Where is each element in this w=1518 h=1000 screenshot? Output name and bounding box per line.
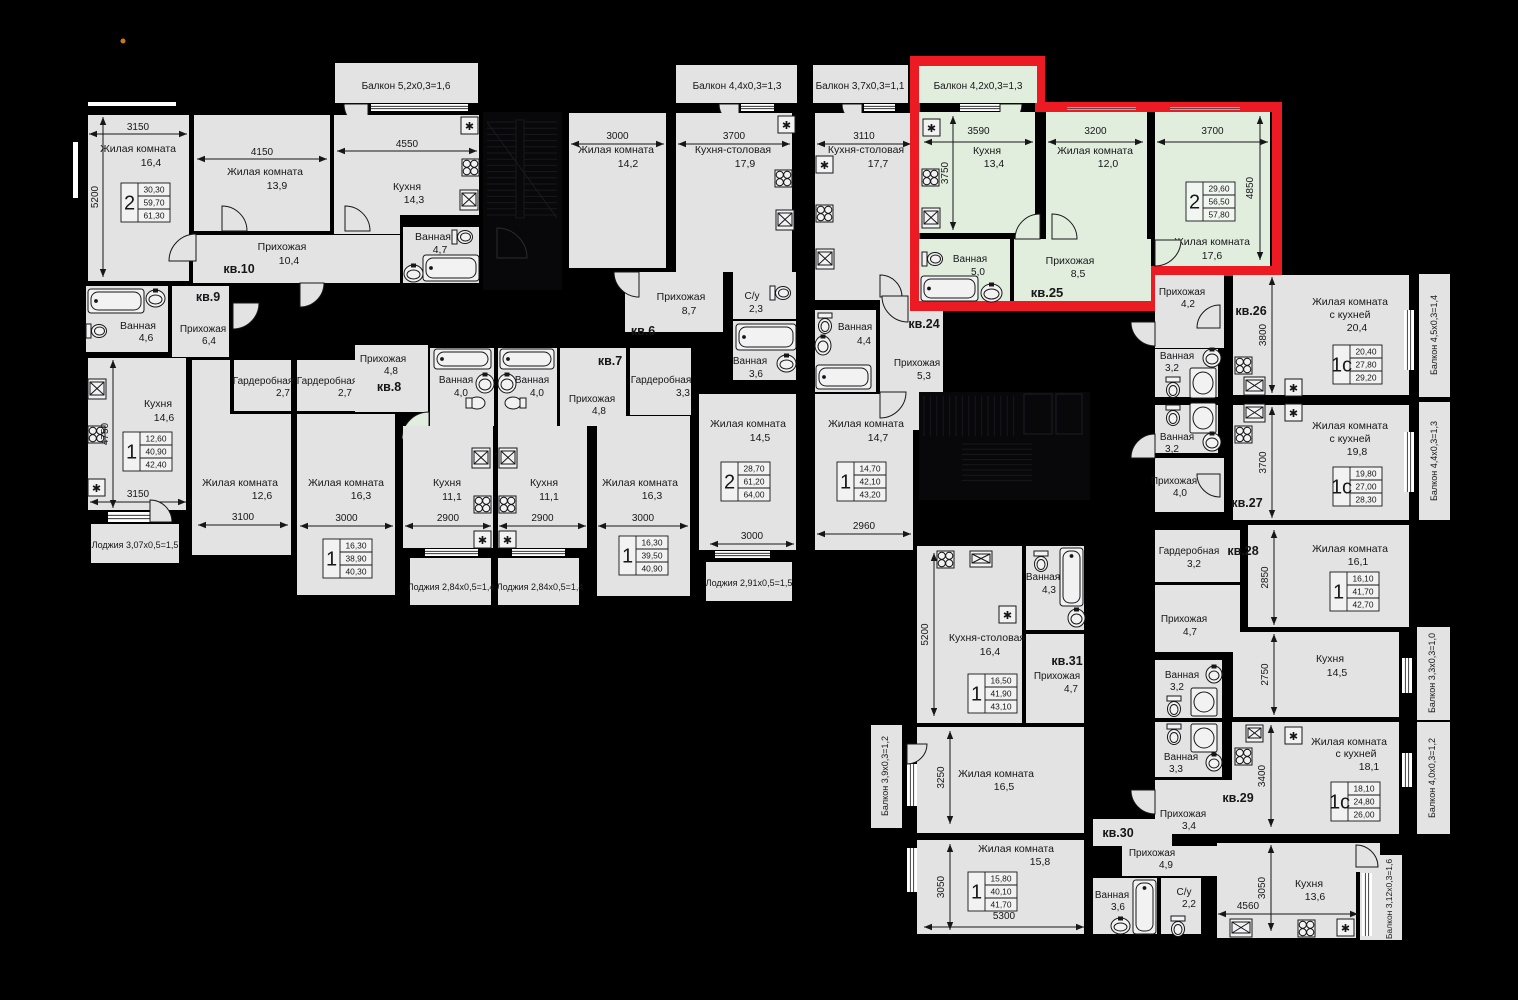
svg-text:1: 1: [971, 684, 982, 706]
svg-text:кв.31: кв.31: [1051, 654, 1082, 668]
svg-text:42,70: 42,70: [1353, 600, 1374, 610]
svg-text:3,3: 3,3: [1169, 764, 1183, 775]
svg-text:14,2: 14,2: [618, 158, 639, 170]
svg-text:кв.10: кв.10: [223, 262, 254, 276]
svg-text:11,1: 11,1: [539, 491, 559, 503]
svg-text:16,10: 16,10: [1353, 574, 1374, 584]
svg-text:17,6: 17,6: [1202, 250, 1223, 262]
svg-text:Жилая комната: Жилая комната: [958, 768, 1034, 780]
svg-text:40,30: 40,30: [346, 567, 367, 577]
svg-text:Жилая комната: Жилая комната: [1312, 543, 1388, 555]
svg-text:Прихожая: Прихожая: [894, 358, 940, 369]
svg-text:Гардеробная: Гардеробная: [233, 375, 294, 387]
svg-text:✱: ✱: [1289, 731, 1298, 743]
svg-text:16,30: 16,30: [346, 541, 367, 551]
svg-text:✱: ✱: [1341, 923, 1350, 935]
svg-text:2900: 2900: [437, 513, 460, 524]
svg-text:16,3: 16,3: [642, 490, 663, 502]
svg-text:Ванная: Ванная: [415, 231, 451, 243]
svg-text:19,8: 19,8: [1347, 446, 1368, 458]
svg-text:Жилая комната: Жилая комната: [202, 477, 278, 489]
svg-text:Ванная: Ванная: [120, 320, 156, 332]
svg-text:5,3: 5,3: [917, 371, 931, 382]
svg-text:4,8: 4,8: [592, 406, 606, 417]
svg-text:42,10: 42,10: [860, 477, 881, 487]
svg-text:Прихожая: Прихожая: [1159, 287, 1205, 298]
svg-text:57,80: 57,80: [1209, 210, 1230, 220]
svg-text:Прихожая: Прихожая: [1161, 614, 1207, 625]
svg-text:20,4: 20,4: [1347, 322, 1368, 334]
svg-text:Балкон 4,0х0,3=1,2: Балкон 4,0х0,3=1,2: [1427, 738, 1437, 818]
svg-text:Прихожая: Прихожая: [258, 241, 307, 253]
svg-text:29,20: 29,20: [1356, 373, 1377, 383]
svg-text:Балкон 3,12х0,3=1,6: Балкон 3,12х0,3=1,6: [1384, 859, 1394, 940]
svg-text:Прихожая: Прихожая: [569, 394, 615, 405]
svg-text:3,4: 3,4: [1182, 821, 1196, 832]
svg-text:12,0: 12,0: [1098, 158, 1119, 170]
svg-text:2,7: 2,7: [338, 388, 352, 399]
svg-text:42,40: 42,40: [146, 460, 167, 470]
svg-text:Жилая комната: Жилая комната: [828, 418, 904, 430]
svg-text:14,6: 14,6: [154, 412, 175, 424]
svg-text:4,0: 4,0: [454, 388, 468, 399]
svg-text:3150: 3150: [127, 122, 150, 133]
svg-text:3700: 3700: [1201, 126, 1224, 137]
svg-text:кв.24: кв.24: [908, 317, 939, 331]
svg-text:Прихожая: Прихожая: [1129, 848, 1175, 859]
svg-text:4,0: 4,0: [1173, 488, 1187, 499]
svg-text:Балкон 3,7х0,3=1,1: Балкон 3,7х0,3=1,1: [816, 81, 905, 92]
svg-text:Жилая комната: Жилая комната: [602, 477, 678, 489]
svg-text:3700: 3700: [1258, 451, 1269, 474]
svg-text:Ванная: Ванная: [953, 254, 987, 265]
svg-text:Балкон 3,3х0,3=1,0: Балкон 3,3х0,3=1,0: [1427, 633, 1437, 713]
svg-text:12,6: 12,6: [252, 490, 273, 502]
svg-text:24,80: 24,80: [1354, 797, 1375, 807]
svg-text:Жилая комната: Жилая комната: [308, 477, 384, 489]
svg-text:Прихожая: Прихожая: [1151, 476, 1197, 487]
svg-text:4,9: 4,9: [1159, 860, 1173, 871]
svg-text:41,70: 41,70: [991, 900, 1012, 910]
svg-text:14,3: 14,3: [404, 194, 425, 206]
svg-text:кв.9: кв.9: [196, 290, 220, 304]
svg-text:Лоджия 3,07х0,5=1,5: Лоджия 3,07х0,5=1,5: [92, 540, 179, 550]
svg-text:13,4: 13,4: [984, 158, 1005, 170]
svg-text:кв.28: кв.28: [1227, 544, 1258, 558]
svg-text:40,10: 40,10: [991, 887, 1012, 897]
svg-text:4750: 4750: [100, 422, 111, 445]
svg-text:1с: 1с: [1329, 792, 1350, 814]
svg-text:4,7: 4,7: [433, 244, 448, 256]
svg-text:27,00: 27,00: [1356, 482, 1377, 492]
svg-text:4,2: 4,2: [1181, 299, 1195, 310]
svg-text:16,1: 16,1: [1348, 556, 1369, 568]
svg-text:2960: 2960: [853, 521, 876, 532]
svg-text:18,1: 18,1: [1359, 761, 1380, 773]
svg-text:13,9: 13,9: [267, 180, 288, 192]
svg-text:27,80: 27,80: [1356, 360, 1377, 370]
svg-text:Жилая комната: Жилая комната: [100, 143, 176, 155]
svg-text:Балкон 4,2х0,3=1,3: Балкон 4,2х0,3=1,3: [934, 81, 1023, 92]
svg-text:✱: ✱: [820, 160, 829, 172]
svg-text:64,00: 64,00: [744, 490, 765, 500]
svg-text:Прихожая: Прихожая: [1034, 671, 1080, 682]
svg-text:с кухней: с кухней: [1336, 748, 1377, 760]
svg-text:3,2: 3,2: [1165, 363, 1179, 374]
svg-text:кв.30: кв.30: [1102, 826, 1133, 840]
svg-text:2850: 2850: [1260, 566, 1271, 589]
svg-text:Кухня: Кухня: [393, 181, 421, 193]
svg-text:Ванная: Ванная: [1160, 432, 1194, 443]
svg-text:Кухня-столовая: Кухня-столовая: [949, 632, 1025, 644]
svg-text:17,9: 17,9: [735, 158, 756, 170]
svg-text:30,30: 30,30: [144, 185, 165, 195]
svg-text:3,2: 3,2: [1165, 444, 1179, 455]
svg-text:Гардеробная: Гардеробная: [631, 374, 692, 386]
svg-text:4,6: 4,6: [139, 332, 154, 344]
svg-text:4150: 4150: [251, 147, 274, 158]
svg-text:кв.26: кв.26: [1235, 304, 1266, 318]
svg-text:1: 1: [840, 472, 851, 494]
svg-text:14,5: 14,5: [1327, 667, 1348, 679]
svg-text:5200: 5200: [920, 623, 931, 646]
svg-text:Гардеробная: Гардеробная: [297, 375, 358, 387]
svg-text:Балкон 4,4х0,3=1,3: Балкон 4,4х0,3=1,3: [1429, 421, 1439, 501]
svg-text:С/у: С/у: [745, 291, 760, 302]
svg-text:29,60: 29,60: [1209, 184, 1230, 194]
svg-text:Жилая комната: Жилая комната: [1174, 236, 1250, 248]
svg-text:4,7: 4,7: [1183, 627, 1197, 638]
svg-text:Кухня: Кухня: [144, 398, 172, 410]
svg-text:3,2: 3,2: [1170, 682, 1184, 693]
svg-text:17,7: 17,7: [868, 158, 889, 170]
svg-text:Ванная: Ванная: [515, 375, 549, 386]
svg-text:Прихожая: Прихожая: [180, 324, 226, 335]
svg-text:12,60: 12,60: [146, 434, 167, 444]
svg-text:2: 2: [724, 472, 735, 494]
svg-text:43,20: 43,20: [860, 490, 881, 500]
svg-text:✱: ✱: [478, 535, 487, 547]
svg-text:Жилая комната: Жилая комната: [710, 418, 786, 430]
svg-text:Прихожая: Прихожая: [1046, 255, 1095, 267]
svg-text:16,50: 16,50: [991, 676, 1012, 686]
svg-text:с кухней: с кухней: [1330, 309, 1371, 321]
svg-text:3750: 3750: [940, 161, 951, 184]
svg-text:1с: 1с: [1331, 477, 1352, 499]
svg-text:Кухня-столовая: Кухня-столовая: [828, 144, 904, 156]
svg-text:3100: 3100: [232, 512, 255, 523]
svg-text:20,40: 20,40: [1356, 347, 1377, 357]
svg-text:59,70: 59,70: [144, 198, 165, 208]
svg-text:14,70: 14,70: [860, 464, 881, 474]
svg-text:1: 1: [971, 882, 982, 904]
svg-text:3590: 3590: [967, 126, 990, 137]
svg-text:✱: ✱: [465, 121, 474, 133]
svg-text:3,2: 3,2: [1187, 559, 1201, 570]
svg-text:Лоджия 2,91х0,5=1,5: Лоджия 2,91х0,5=1,5: [706, 578, 793, 588]
svg-text:56,50: 56,50: [1209, 197, 1230, 207]
svg-text:61,20: 61,20: [744, 477, 765, 487]
svg-text:Балкон 4,4х0,3=1,3: Балкон 4,4х0,3=1,3: [693, 81, 782, 92]
svg-text:18,10: 18,10: [1354, 784, 1375, 794]
svg-text:28,70: 28,70: [744, 464, 765, 474]
svg-text:3,3: 3,3: [676, 388, 690, 399]
svg-text:Балкон 4,5х0,3=1,4: Балкон 4,5х0,3=1,4: [1429, 295, 1439, 375]
svg-text:1: 1: [622, 546, 633, 568]
svg-text:2,3: 2,3: [749, 304, 763, 315]
svg-text:2: 2: [124, 193, 135, 215]
svg-text:С/у: С/у: [1177, 887, 1192, 898]
svg-text:Кухня: Кухня: [530, 477, 558, 489]
svg-text:3250: 3250: [936, 766, 947, 789]
svg-text:1: 1: [126, 442, 137, 464]
svg-text:2,7: 2,7: [276, 388, 290, 399]
svg-text:3000: 3000: [606, 131, 629, 142]
svg-text:3000: 3000: [632, 513, 655, 524]
svg-text:19,80: 19,80: [1356, 469, 1377, 479]
svg-text:3000: 3000: [741, 531, 764, 542]
svg-text:14,5: 14,5: [750, 432, 771, 444]
svg-text:1: 1: [1333, 582, 1344, 604]
svg-text:Кухня: Кухня: [1316, 653, 1344, 665]
svg-text:14,7: 14,7: [868, 432, 889, 444]
svg-text:✱: ✱: [1289, 383, 1298, 395]
svg-text:41,70: 41,70: [1353, 587, 1374, 597]
svg-text:15,80: 15,80: [991, 874, 1012, 884]
svg-text:Кухня: Кухня: [433, 477, 461, 489]
svg-text:Ванная: Ванная: [1160, 351, 1194, 362]
svg-text:5300: 5300: [993, 911, 1016, 922]
svg-text:41,90: 41,90: [991, 689, 1012, 699]
svg-text:Жилая комната: Жилая комната: [227, 166, 303, 178]
svg-text:✱: ✱: [1289, 408, 1298, 420]
svg-text:Жилая комната: Жилая комната: [578, 144, 654, 156]
svg-text:Кухня: Кухня: [1295, 878, 1323, 890]
svg-text:11,1: 11,1: [442, 491, 462, 503]
svg-text:Кухня-столовая: Кухня-столовая: [695, 144, 771, 156]
svg-text:кв.6: кв.6: [631, 324, 655, 338]
svg-text:4,7: 4,7: [1064, 684, 1078, 695]
svg-text:Жилая комната: Жилая комната: [1312, 296, 1388, 308]
svg-text:3,6: 3,6: [749, 369, 763, 380]
svg-text:10,4: 10,4: [279, 255, 300, 267]
svg-text:Ванная: Ванная: [1164, 752, 1198, 763]
svg-text:Прихожая: Прихожая: [1160, 809, 1206, 820]
svg-text:Ванная: Ванная: [733, 356, 767, 367]
svg-text:16,30: 16,30: [642, 538, 663, 548]
svg-text:2900: 2900: [531, 513, 554, 524]
svg-text:Ванная: Ванная: [439, 375, 473, 386]
svg-text:40,90: 40,90: [146, 447, 167, 457]
svg-text:Ванная: Ванная: [838, 322, 872, 333]
svg-text:Жилая комната: Жилая комната: [978, 843, 1054, 855]
svg-text:Жилая комната: Жилая комната: [1312, 420, 1388, 432]
svg-text:Балкон 5,2х0,3=1,6: Балкон 5,2х0,3=1,6: [362, 81, 451, 92]
svg-text:Ванная: Ванная: [1095, 890, 1129, 901]
svg-text:3110: 3110: [853, 131, 875, 142]
svg-text:3150: 3150: [127, 489, 150, 500]
svg-text:4,0: 4,0: [530, 388, 544, 399]
svg-text:3700: 3700: [723, 131, 746, 142]
svg-text:Ванная: Ванная: [1165, 670, 1199, 681]
svg-text:2750: 2750: [1260, 663, 1271, 686]
svg-text:5200: 5200: [90, 185, 101, 208]
svg-text:39,50: 39,50: [642, 551, 663, 561]
svg-text:Прихожая: Прихожая: [657, 291, 706, 303]
svg-text:кв.25: кв.25: [1031, 285, 1064, 300]
svg-text:4850: 4850: [1245, 176, 1256, 199]
svg-text:26,00: 26,00: [1354, 810, 1375, 820]
svg-text:28,30: 28,30: [1356, 495, 1377, 505]
svg-text:Ванная: Ванная: [1026, 572, 1060, 583]
svg-text:Гардеробная: Гардеробная: [1159, 545, 1220, 557]
svg-text:16,4: 16,4: [141, 157, 162, 169]
svg-text:4550: 4550: [396, 139, 419, 150]
svg-text:Кухня: Кухня: [973, 145, 1001, 157]
svg-text:61,30: 61,30: [144, 211, 165, 221]
svg-text:6,4: 6,4: [202, 336, 216, 347]
svg-text:кв.8: кв.8: [377, 380, 401, 394]
svg-text:3000: 3000: [335, 513, 358, 524]
svg-text:43,10: 43,10: [991, 702, 1012, 712]
svg-text:4560: 4560: [1237, 901, 1260, 912]
svg-text:2: 2: [1189, 192, 1200, 214]
svg-text:8,7: 8,7: [682, 305, 697, 317]
svg-text:3200: 3200: [1084, 126, 1107, 137]
svg-text:4,8: 4,8: [384, 366, 398, 377]
svg-text:16,5: 16,5: [994, 781, 1015, 793]
svg-text:кв.7: кв.7: [598, 354, 622, 368]
svg-text:Жилая комната: Жилая комната: [1057, 145, 1133, 157]
svg-text:✱: ✱: [1003, 610, 1012, 622]
svg-text:38,90: 38,90: [346, 554, 367, 564]
svg-text:3,6: 3,6: [1111, 902, 1125, 913]
svg-text:Прихожая: Прихожая: [360, 354, 406, 365]
svg-text:Лоджия 2,84х0,5=1,4: Лоджия 2,84х0,5=1,4: [408, 582, 495, 592]
svg-text:3800: 3800: [1258, 323, 1269, 346]
svg-text:40,90: 40,90: [642, 564, 663, 574]
svg-text:2,2: 2,2: [1182, 899, 1196, 910]
svg-text:✱: ✱: [927, 123, 936, 135]
svg-text:Балкон 3,9х0,3=1,2: Балкон 3,9х0,3=1,2: [880, 736, 890, 816]
svg-text:кв.27: кв.27: [1231, 496, 1262, 510]
svg-text:3400: 3400: [1257, 764, 1268, 787]
svg-text:Лоджия 2,84х0,5=1,4: Лоджия 2,84х0,5=1,4: [497, 582, 584, 592]
svg-text:1с: 1с: [1331, 355, 1352, 377]
svg-text:✱: ✱: [92, 483, 101, 495]
svg-text:16,3: 16,3: [351, 490, 372, 502]
svg-text:4,3: 4,3: [1042, 585, 1056, 596]
svg-text:8,5: 8,5: [1071, 268, 1086, 280]
svg-text:Жилая комната: Жилая комната: [1311, 736, 1387, 748]
svg-text:4,4: 4,4: [857, 336, 871, 347]
svg-text:16,4: 16,4: [980, 646, 1001, 658]
svg-text:✱: ✱: [782, 120, 791, 132]
svg-text:✱: ✱: [503, 535, 512, 547]
svg-text:3050: 3050: [936, 875, 947, 898]
svg-text:с кухней: с кухней: [1330, 433, 1371, 445]
svg-text:кв.29: кв.29: [1222, 791, 1253, 805]
svg-text:13,6: 13,6: [1305, 891, 1326, 903]
svg-text:1: 1: [326, 549, 337, 571]
svg-text:3050: 3050: [1257, 876, 1268, 899]
svg-text:15,8: 15,8: [1030, 856, 1051, 868]
